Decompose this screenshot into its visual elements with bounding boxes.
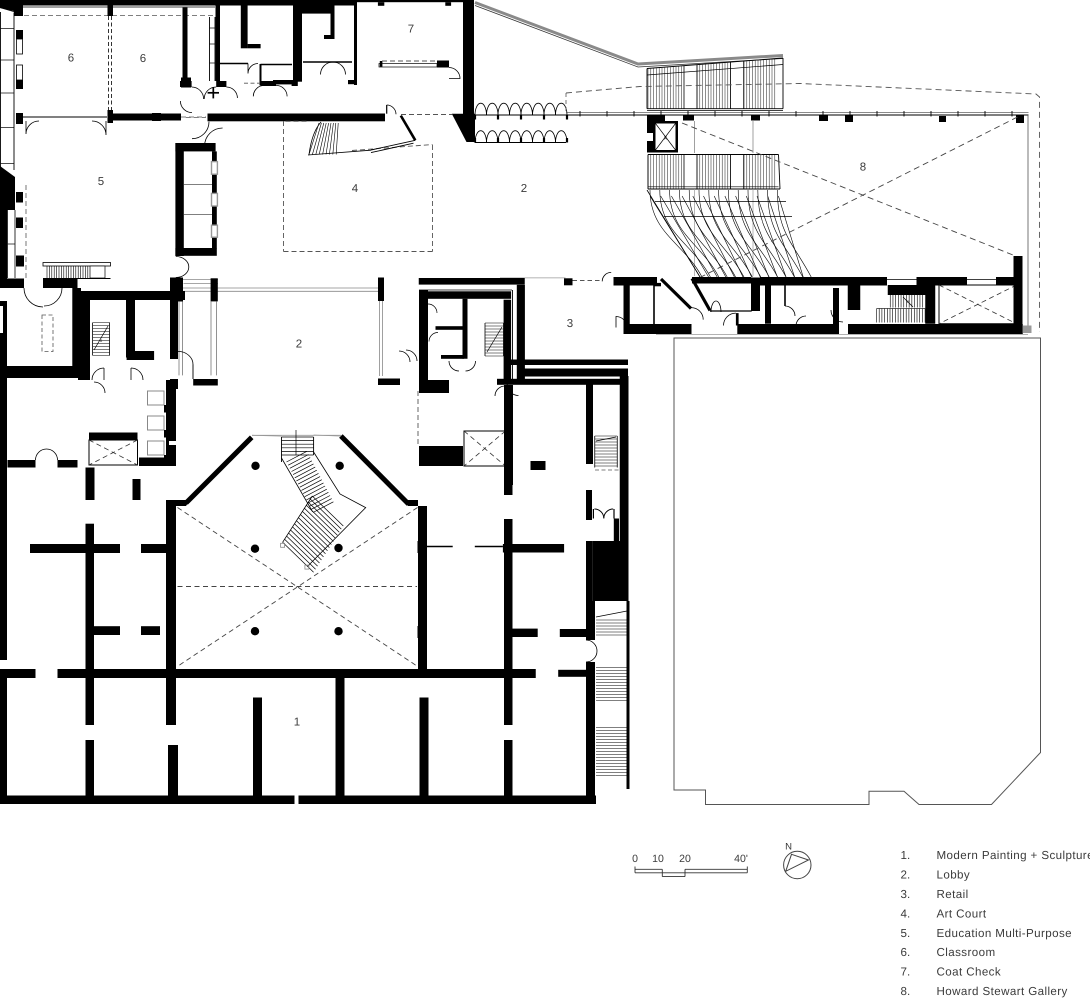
svg-text:8.: 8.: [901, 985, 911, 998]
svg-text:6: 6: [68, 53, 74, 65]
svg-text:2: 2: [521, 183, 527, 195]
svg-text:40': 40': [734, 853, 748, 865]
svg-text:Coat Check: Coat Check: [937, 966, 1002, 979]
svg-text:20: 20: [679, 853, 691, 865]
svg-text:4: 4: [352, 183, 359, 195]
svg-text:7: 7: [408, 24, 414, 36]
svg-text:7.: 7.: [901, 966, 911, 979]
svg-text:1: 1: [294, 717, 300, 729]
svg-text:3.: 3.: [901, 888, 911, 901]
svg-text:Modern Painting + Sculpture: Modern Painting + Sculpture: [937, 849, 1090, 862]
svg-text:Education Multi-Purpose: Education Multi-Purpose: [937, 927, 1073, 940]
svg-text:6: 6: [140, 53, 146, 65]
svg-text:Retail: Retail: [937, 888, 969, 901]
svg-text:8: 8: [860, 162, 866, 174]
svg-text:10: 10: [652, 853, 664, 865]
svg-text:x: x: [664, 136, 667, 142]
svg-text:Classroom: Classroom: [937, 946, 996, 959]
svg-text:5: 5: [98, 176, 104, 188]
svg-text:2.: 2.: [901, 869, 911, 882]
svg-text:Lobby: Lobby: [937, 869, 971, 882]
svg-text:1.: 1.: [901, 849, 911, 862]
svg-text:5.: 5.: [901, 927, 911, 940]
svg-text:Art Court: Art Court: [937, 907, 987, 920]
svg-text:2: 2: [296, 339, 302, 351]
svg-text:0: 0: [632, 853, 638, 865]
svg-text:3: 3: [567, 318, 573, 330]
svg-text:6.: 6.: [901, 946, 911, 959]
svg-text:N: N: [785, 842, 792, 853]
svg-text:4.: 4.: [901, 907, 911, 920]
svg-text:Howard Stewart Gallery: Howard Stewart Gallery: [937, 985, 1068, 998]
